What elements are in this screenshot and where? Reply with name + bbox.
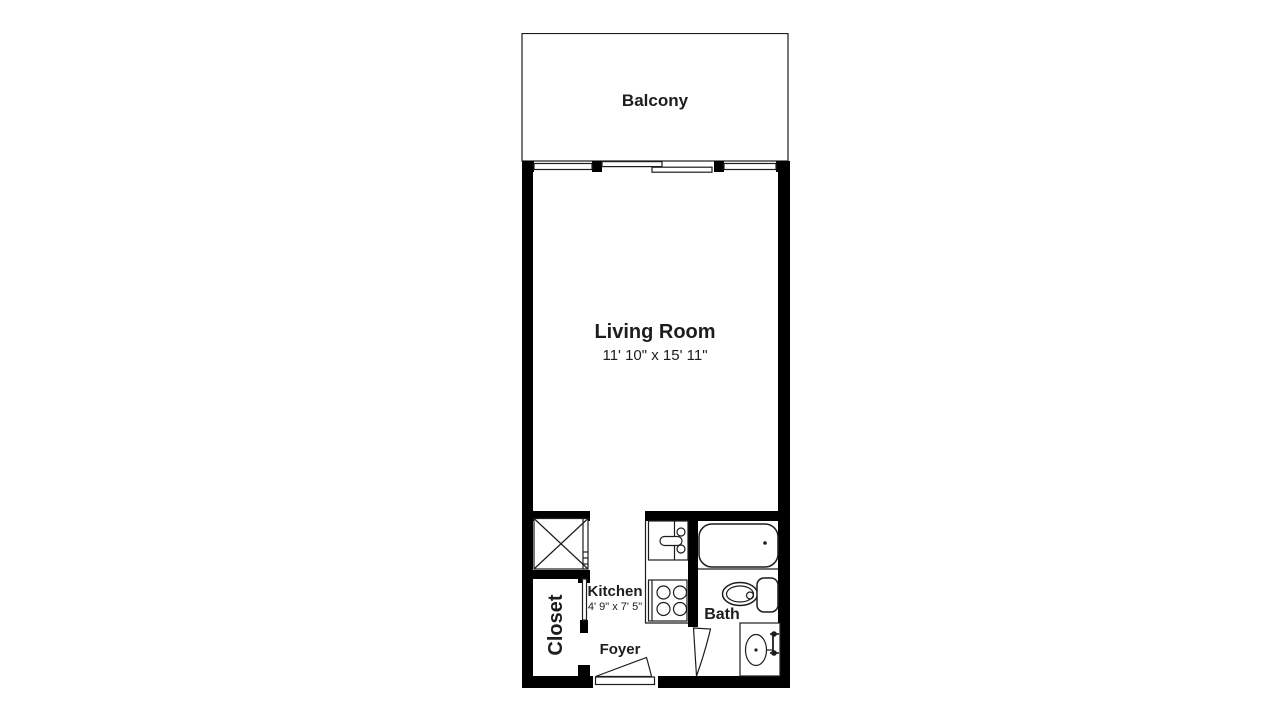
bathtub-icon: [698, 524, 778, 569]
living-room-bottom-wall-right: [645, 511, 790, 521]
living-room-label: Living Room: [520, 321, 790, 343]
kitchen-label: Kitchen: [560, 584, 670, 601]
window-icon: [724, 164, 776, 170]
bath-door-swing-icon: [694, 628, 711, 676]
floor-plan-page: Balcony Living Room 11' 10" x 15' 11" Ki…: [0, 0, 1280, 720]
closet-mid-post: [580, 620, 588, 633]
entry-door-swing-icon: [596, 658, 652, 677]
kitchen-dimensions: 4' 9" x 7' 5": [560, 601, 670, 613]
entry-threshold: [596, 677, 655, 685]
bath-label: Bath: [677, 606, 767, 624]
top-wall-post-2: [714, 161, 724, 172]
closet-bottom-post: [578, 665, 590, 677]
washer-dryer-icon: [534, 519, 588, 570]
vanity-sink-icon: [740, 623, 780, 676]
living-room-dimensions: 11' 10" x 15' 11": [520, 348, 790, 365]
window-icon: [534, 164, 592, 170]
closet-label: Closet: [545, 565, 567, 685]
left-wall: [522, 161, 533, 688]
bottom-wall-right: [658, 676, 790, 688]
sliding-door-icon: [652, 167, 712, 172]
kitchen-sink-icon: [649, 521, 689, 560]
right-wall: [778, 161, 790, 688]
foyer-label: Foyer: [570, 642, 670, 659]
top-wall-post-1: [592, 161, 602, 172]
sliding-door-icon: [602, 162, 662, 167]
balcony-label: Balcony: [520, 92, 790, 111]
